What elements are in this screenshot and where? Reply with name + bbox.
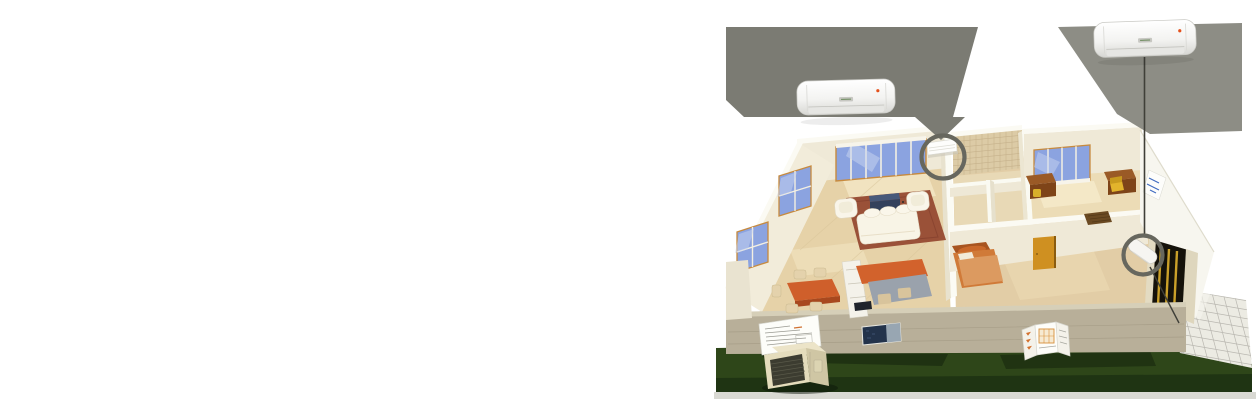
front-left-corner-column (726, 260, 752, 320)
page (0, 0, 1256, 401)
front-band-vent (862, 323, 901, 345)
armchair-left (834, 198, 858, 219)
indoor-unit-product-left[interactable] (797, 79, 896, 127)
bedroom-door (1033, 236, 1056, 270)
study-desk-right (1104, 169, 1136, 195)
study-desk-left (1026, 173, 1056, 199)
armchair-right (906, 191, 930, 212)
ac-home-illustration (0, 0, 1256, 401)
